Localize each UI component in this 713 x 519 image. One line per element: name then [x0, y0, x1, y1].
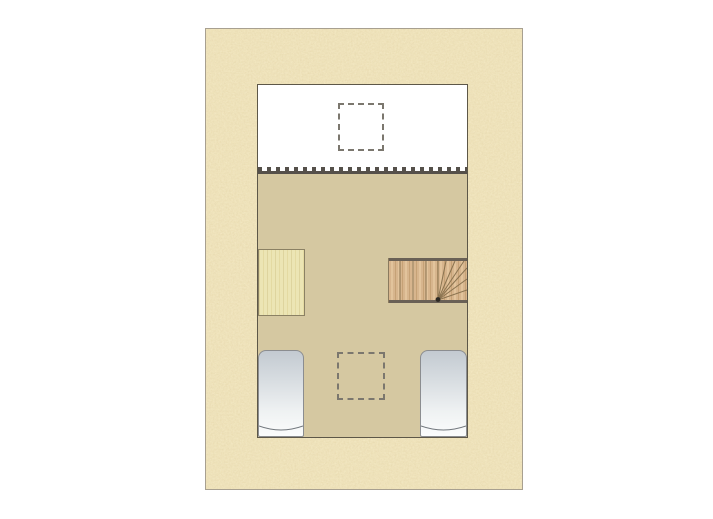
winder-staircase [388, 258, 467, 303]
interior-rooms [257, 84, 468, 438]
stair-treads [400, 261, 438, 300]
bed-right-duvet-curve [421, 426, 466, 430]
stair-stringer-bottom [388, 300, 467, 303]
stair-newel-point [436, 297, 441, 302]
bed-right [420, 350, 467, 437]
bed-left [258, 350, 304, 437]
wardrobe [258, 249, 305, 316]
stair-stringer-top [388, 258, 467, 261]
bed-left-duvet-curve [259, 426, 303, 430]
floor-plan [205, 28, 523, 490]
skylight-dashed-lower [337, 352, 385, 400]
stair-winder-fan [438, 261, 467, 300]
skylight-dashed-upper [338, 103, 384, 151]
